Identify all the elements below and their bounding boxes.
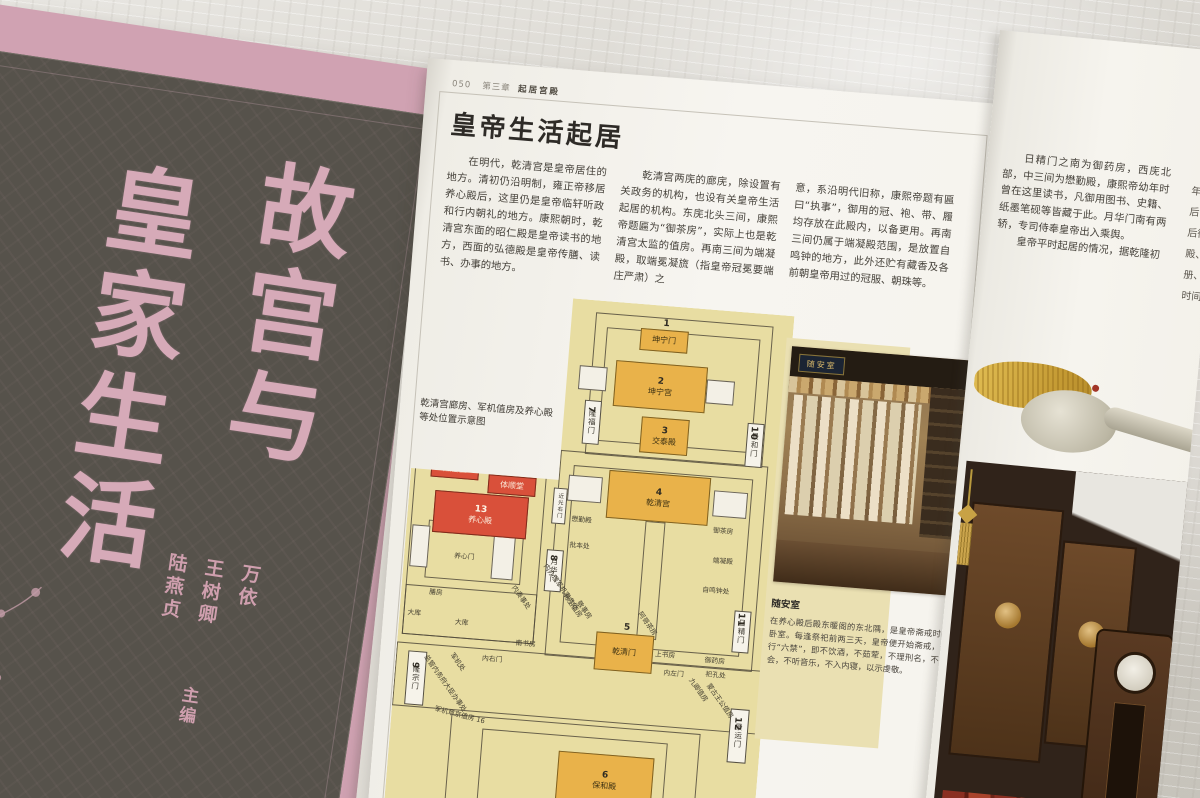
map-side-hall: [567, 475, 603, 504]
map-annotation-内右门: 内右门: [482, 652, 503, 664]
map-annotation-端凝殿: 端凝殿: [712, 554, 733, 566]
map-side-hall: [490, 533, 516, 581]
map-hall-养心殿: 13养心殿: [432, 490, 529, 539]
suianshi-caption: 随安室 在养心殿后殿东暖阁的东北隅，是皇帝斋戒时的卧室。每逢祭祀前两三天，皇帝便…: [766, 595, 951, 680]
ornament-knot: [958, 504, 978, 524]
edge-fragment: 时间王: [1180, 286, 1200, 310]
chapter-label: 第三章: [482, 81, 511, 93]
bed-drapes: [785, 394, 922, 524]
map-annotation-养心门: 养心门: [454, 550, 475, 562]
map-hall-体顺堂: 14体顺堂: [487, 474, 536, 497]
suianshi-plaque: 随安室: [798, 354, 845, 376]
jade-ruyi-handle: [1102, 405, 1200, 460]
edge-fragment: 年的: [1190, 181, 1200, 205]
map-gate-隆福门: 隆福门7: [582, 400, 602, 445]
map-annotation-御药房: 御药房: [704, 654, 725, 666]
map-annotation-自鸣钟处: 自鸣钟处: [702, 584, 730, 596]
map-annotation-南书房: 南书房: [515, 637, 536, 649]
suianshi-bedchamber-photo: 随安室: [773, 346, 973, 596]
article-column-1: 在明代，乾清宫是皇帝居住的地方。清初仍沿明制，雍正帝移居养心殿后，这里仍是皇帝临…: [439, 152, 607, 284]
page-number: 050: [452, 79, 472, 91]
map-annotation-懋勤殿: 懋勤殿: [571, 513, 592, 525]
map-annotation-膳房: 膳房: [429, 586, 443, 597]
map-hall-乾清门: 5乾清门: [594, 631, 655, 674]
map-annotation-内左门: 内左门: [663, 667, 684, 679]
map-annotation-御茶房: 御茶房: [713, 524, 734, 536]
article-column-3: 意，系沿明代旧称，康熙帝题有匾曰“执事”，御用的冠、袍、带、履均存放在此殿内，以…: [786, 180, 954, 312]
map-side-hall: [712, 490, 748, 519]
column4-paragraph1: 日精门之南为御药房，西庑北部，中三间为懋勤殿，康熙帝幼年时曾在这里读书，凡御用图…: [997, 149, 1172, 248]
section-label: 起居宫殿: [518, 84, 561, 97]
author-names: 陆燕贞 王树卿 万依: [155, 551, 265, 634]
red-bead: [1092, 384, 1100, 392]
edge-fragment: 册、八: [1182, 265, 1200, 289]
map-gate-景和门: 景和门10: [744, 423, 764, 468]
clock-face: [1112, 650, 1158, 696]
red-lacquer-items: [940, 790, 1073, 798]
map-side-hall: [409, 524, 430, 567]
photo-of-magazine-spread-on-table: 故宫与 皇家生活 陆燕贞 王树卿 万依 主编 Life in: [0, 0, 1200, 798]
map-hall-交泰殿: 3交泰殿: [639, 416, 690, 456]
article-column-4: 日精门之南为御药房，西庑北部，中三间为懋勤殿，康熙帝幼年时曾在这里读书，凡御用图…: [995, 149, 1172, 265]
map-side-hall: [705, 379, 735, 405]
map-hall-坤宁宫: 2坤宁宫: [613, 360, 708, 413]
map-annotation-祀孔处: 祀孔处: [705, 668, 726, 680]
map-hall-坤宁门: 1坤宁门: [639, 328, 689, 354]
map-hall-乾清宫: 4乾清宫: [606, 470, 712, 526]
edge-cut-text-fragments: 年的后后御殿、翻册、八时间王: [1180, 181, 1200, 309]
ornament-fringe: [957, 522, 973, 565]
map-side-hall: [578, 365, 608, 391]
map-annotation-大库: 大库: [407, 606, 421, 617]
map-gate-日精门: 日精门11: [731, 610, 751, 653]
map-annotation-大库: 大库: [455, 616, 469, 627]
map-gate-近光右门: 近光右门: [551, 487, 568, 524]
edge-fragment: 后: [1188, 202, 1200, 226]
author-name: 王树卿: [192, 556, 229, 628]
edge-fragment: 殿、翻: [1184, 244, 1200, 268]
clock-pendulum-window: [1101, 702, 1146, 798]
map-hall-保和殿: 6保和殿: [555, 751, 655, 798]
brass-medallion: [994, 601, 1022, 629]
map-annotation-批本处: 批本处: [569, 539, 590, 551]
edge-fragment: 后御: [1186, 223, 1200, 247]
article-column-2: 乾清宫两庑的廊庑，除设置有关政务的机构，也设有关皇帝生活起居的机构。东庑北头三间…: [613, 166, 781, 298]
map-annotation-上书房: 上书房: [655, 648, 676, 660]
